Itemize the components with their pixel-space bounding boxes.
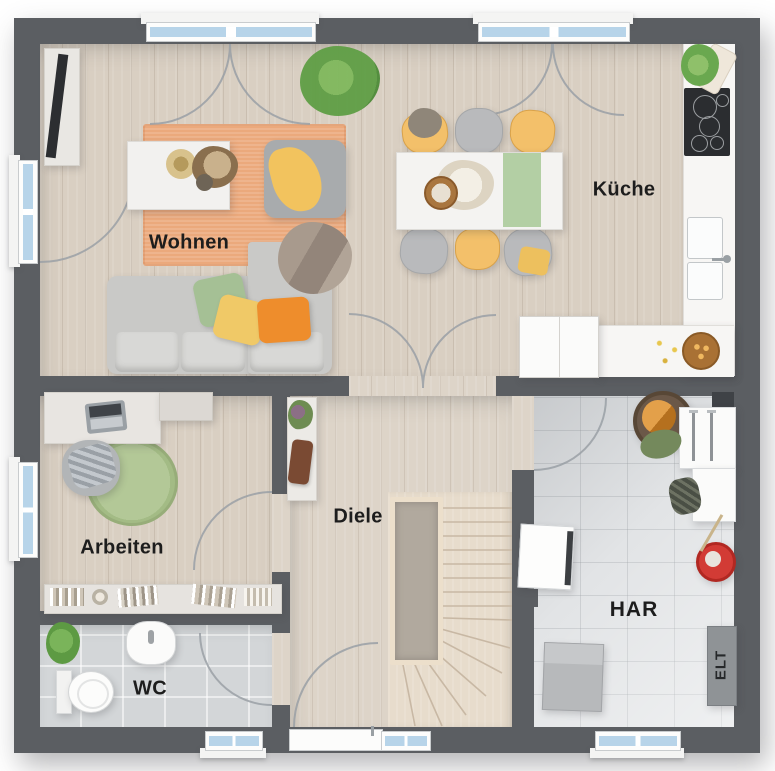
pillow-orange <box>257 296 312 344</box>
window-wc-bottom <box>205 731 263 751</box>
sink-basin-1 <box>687 217 723 259</box>
kitchen-appliance <box>519 316 599 378</box>
wc-faucet <box>148 630 154 644</box>
storage-box-lid <box>544 643 603 665</box>
threshold-living-diele <box>349 376 496 396</box>
wall-kitchen-har <box>496 376 734 396</box>
dining-chair-top-2 <box>455 108 503 154</box>
staircase-runner <box>390 497 443 665</box>
books-cluster-4 <box>244 588 272 606</box>
window-living-top <box>146 22 316 42</box>
burner-5 <box>710 136 724 150</box>
kitchen-sink <box>685 214 733 304</box>
threshold-wc-door <box>272 633 290 705</box>
room-label-wohnen: Wohnen <box>149 232 229 255</box>
exterior-wall-top <box>14 18 760 44</box>
laptop-screen <box>89 403 122 417</box>
appliance-divider <box>559 317 560 377</box>
har-storage-box <box>542 642 604 712</box>
window-kitchen-top <box>478 22 630 42</box>
exterior-wall-right <box>734 18 760 753</box>
window-har-bottom <box>595 731 681 751</box>
wooden-bowl <box>424 176 458 210</box>
bucket-contents <box>705 551 721 567</box>
tool-1 <box>692 413 695 461</box>
faucet-spout <box>712 258 725 261</box>
fruit-bowl <box>682 332 720 370</box>
burner-3 <box>699 116 720 137</box>
wc-sink <box>126 621 176 665</box>
table-runner-green <box>503 153 541 227</box>
deco-round-box <box>92 589 108 605</box>
burner-4 <box>691 135 708 152</box>
har-wall-pillar <box>516 589 538 607</box>
entry-door <box>289 729 383 751</box>
dining-chair-bottom-2 <box>455 228 500 270</box>
room-label-arbeiten: Arbeiten <box>80 537 164 560</box>
washing-machine <box>517 524 574 591</box>
cooktop <box>684 88 730 156</box>
laptop-keyboard <box>90 416 123 429</box>
entry-door-handle <box>371 726 374 736</box>
books-cluster-1 <box>50 588 84 606</box>
window-living-left <box>18 160 38 264</box>
entry-sidelight-window <box>381 731 431 751</box>
tool-2 <box>710 413 713 461</box>
threshold-arbeiten-door <box>272 494 290 572</box>
tool-hook-2 <box>707 410 716 413</box>
tool-hook-1 <box>689 410 698 413</box>
room-label-har: HAR <box>610 598 659 622</box>
wall-wc-diele-lower <box>272 705 290 727</box>
exterior-wall-left <box>14 18 40 753</box>
laptop <box>85 400 128 434</box>
threshold-har-door <box>512 396 534 470</box>
window-arbeiten-left <box>18 462 38 558</box>
sofa-cushion-1 <box>115 332 179 372</box>
chair-cloth-yellow <box>517 246 551 277</box>
floorplan-canvas: Wohnen Küche Arbeiten Diele WC HAR ELT <box>0 0 775 771</box>
room-label-kueche: Küche <box>593 179 656 202</box>
office-desk-return <box>159 392 213 421</box>
room-label-diele: Diele <box>333 506 382 529</box>
toilet-bowl <box>68 671 114 713</box>
room-label-elt: ELT <box>713 650 730 680</box>
laundry-clothes-orange <box>642 400 676 434</box>
burner-2 <box>716 94 729 107</box>
burner-1 <box>693 95 717 119</box>
tool-shelf <box>679 407 736 469</box>
sink-basin-2 <box>687 262 723 300</box>
table-vase <box>196 174 213 191</box>
books-cluster-2 <box>117 585 159 607</box>
toilet-seat <box>77 679 109 709</box>
room-label-wc: WC <box>133 678 167 701</box>
